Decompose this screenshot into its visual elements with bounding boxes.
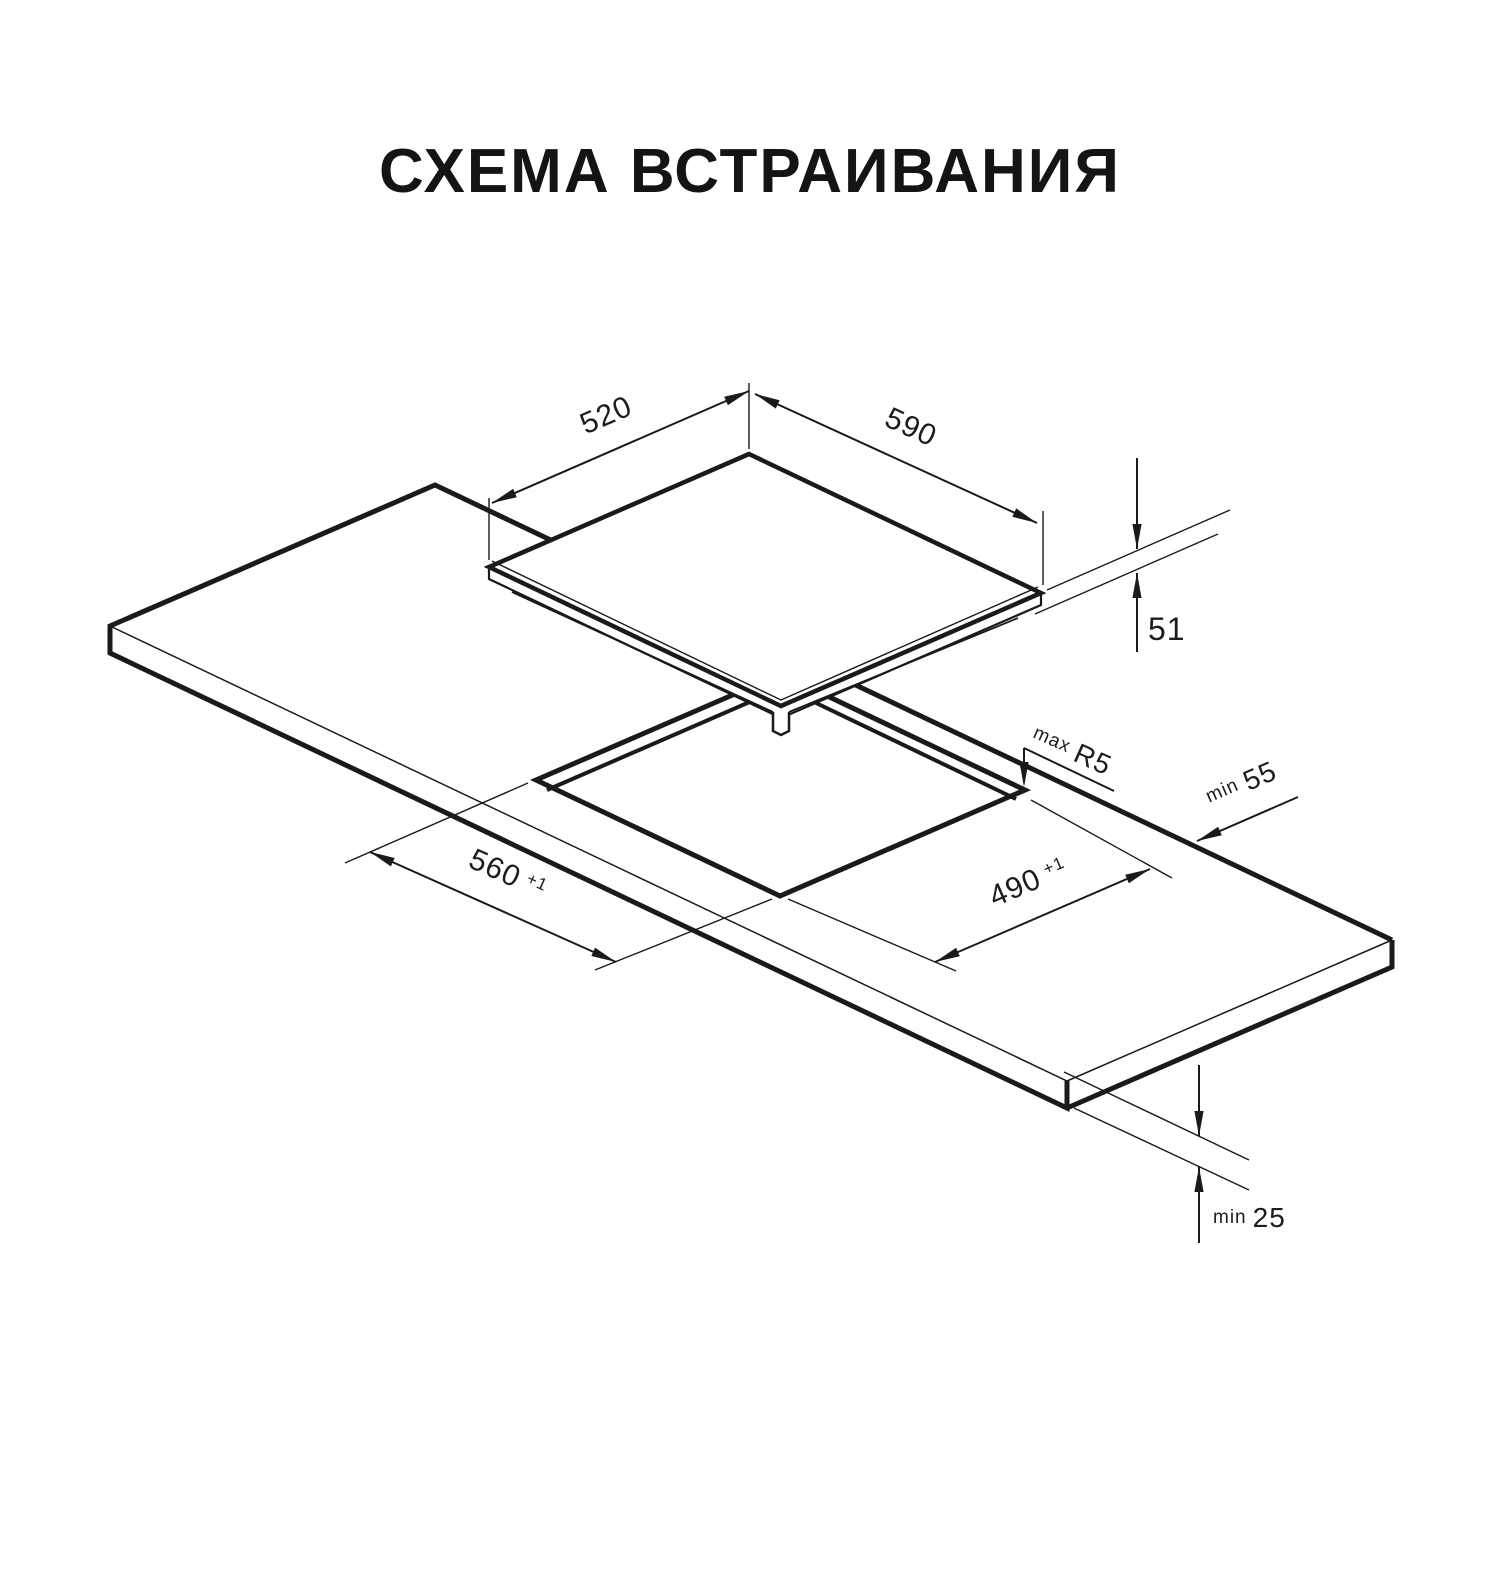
dim-rear-edge-clearance-prefix: min	[1203, 775, 1242, 808]
dim-hob-height-value: 51	[1148, 611, 1186, 647]
dim-cutout-width-value: 560	[464, 843, 526, 895]
dim-hob-height-arrowhead	[1132, 524, 1141, 549]
dim-cutout-width-arrowhead	[370, 852, 395, 866]
dim-hob-height-extension-line	[1047, 510, 1230, 590]
dim-bottom-clearance-value: 25	[1253, 1202, 1286, 1233]
installation-diagram-page: СХЕМА ВСТРАИВАНИЯ 52059051maxR5min55560+…	[0, 0, 1500, 1586]
dim-hob-width-arrowhead	[755, 394, 780, 409]
dim-rear-edge-clearance-arrowhead	[1197, 827, 1222, 841]
installation-drawing: 52059051maxR5min55560+1490+1min25	[0, 0, 1500, 1586]
dim-rear-edge-clearance: min55	[1197, 755, 1298, 841]
dim-hob-height-label: 51	[1148, 611, 1186, 647]
dim-hob-width-arrowhead	[1012, 508, 1037, 523]
dim-hob-height-extension-line	[1035, 534, 1218, 614]
dim-hob-depth-arrowhead	[724, 391, 749, 405]
dim-hob-height-arrowhead	[1132, 573, 1141, 598]
dim-hob-depth-value: 520	[575, 390, 637, 441]
dim-bottom-clearance-arrowhead	[1194, 1111, 1203, 1136]
dim-hob-width-value: 590	[880, 401, 942, 453]
dim-hob-depth-label: 520	[575, 390, 637, 441]
dim-bottom-clearance-extension-line	[1074, 1108, 1249, 1190]
dim-cutout-width-tolerance: +1	[524, 869, 551, 895]
dim-cutout-corner-radius-value: R5	[1069, 737, 1116, 781]
dim-bottom-clearance-prefix: min	[1213, 1207, 1247, 1228]
dim-bottom-clearance-label: min25	[1213, 1202, 1286, 1233]
dim-hob-height: 51	[1035, 458, 1230, 652]
dim-bottom-clearance-arrowhead	[1194, 1167, 1203, 1192]
dim-cutout-width-arrowhead	[591, 948, 616, 962]
dim-cutout-corner-radius-prefix: max	[1030, 722, 1074, 757]
dim-hob-depth-arrowhead	[492, 489, 517, 503]
dim-rear-edge-clearance-value: 55	[1238, 755, 1281, 797]
dim-rear-edge-clearance-label: min55	[1201, 755, 1281, 813]
dim-hob-width-label: 590	[880, 401, 942, 453]
